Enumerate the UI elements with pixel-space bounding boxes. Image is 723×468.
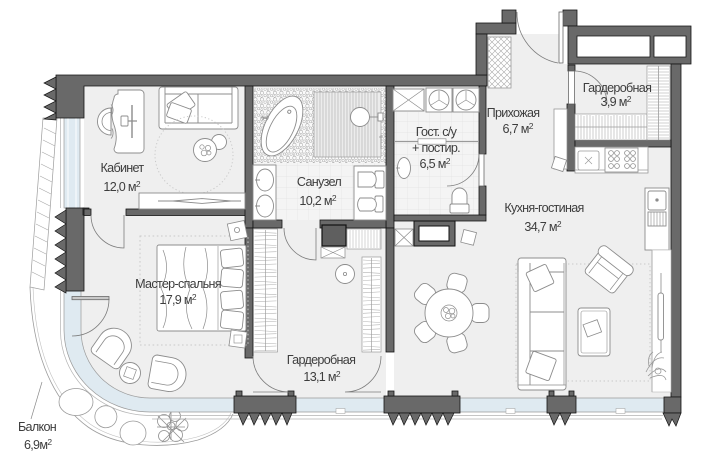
svg-text:Гардеробная: Гардеробная xyxy=(583,81,651,95)
svg-text:Кабинет: Кабинет xyxy=(101,161,145,175)
svg-text:Гардеробная: Гардеробная xyxy=(287,353,355,367)
svg-text:34,7 м2: 34,7 м2 xyxy=(524,219,561,234)
svg-text:13,1 м2: 13,1 м2 xyxy=(303,369,340,384)
svg-text:Кухня-гостиная: Кухня-гостиная xyxy=(504,201,583,215)
svg-text:Мастер-спальня: Мастер-спальня xyxy=(135,277,221,291)
svg-text:+ постир.: + постир. xyxy=(412,141,460,155)
svg-text:Балкон: Балкон xyxy=(18,420,57,434)
svg-text:Гост. с/у: Гост. с/у xyxy=(416,125,458,139)
svg-text:Санузел: Санузел xyxy=(297,175,342,189)
svg-text:12,0 м2: 12,0 м2 xyxy=(103,179,140,194)
svg-text:10,2 м2: 10,2 м2 xyxy=(299,193,336,208)
svg-text:17,9 м2: 17,9 м2 xyxy=(159,292,196,307)
svg-text:Прихожая: Прихожая xyxy=(487,106,540,120)
